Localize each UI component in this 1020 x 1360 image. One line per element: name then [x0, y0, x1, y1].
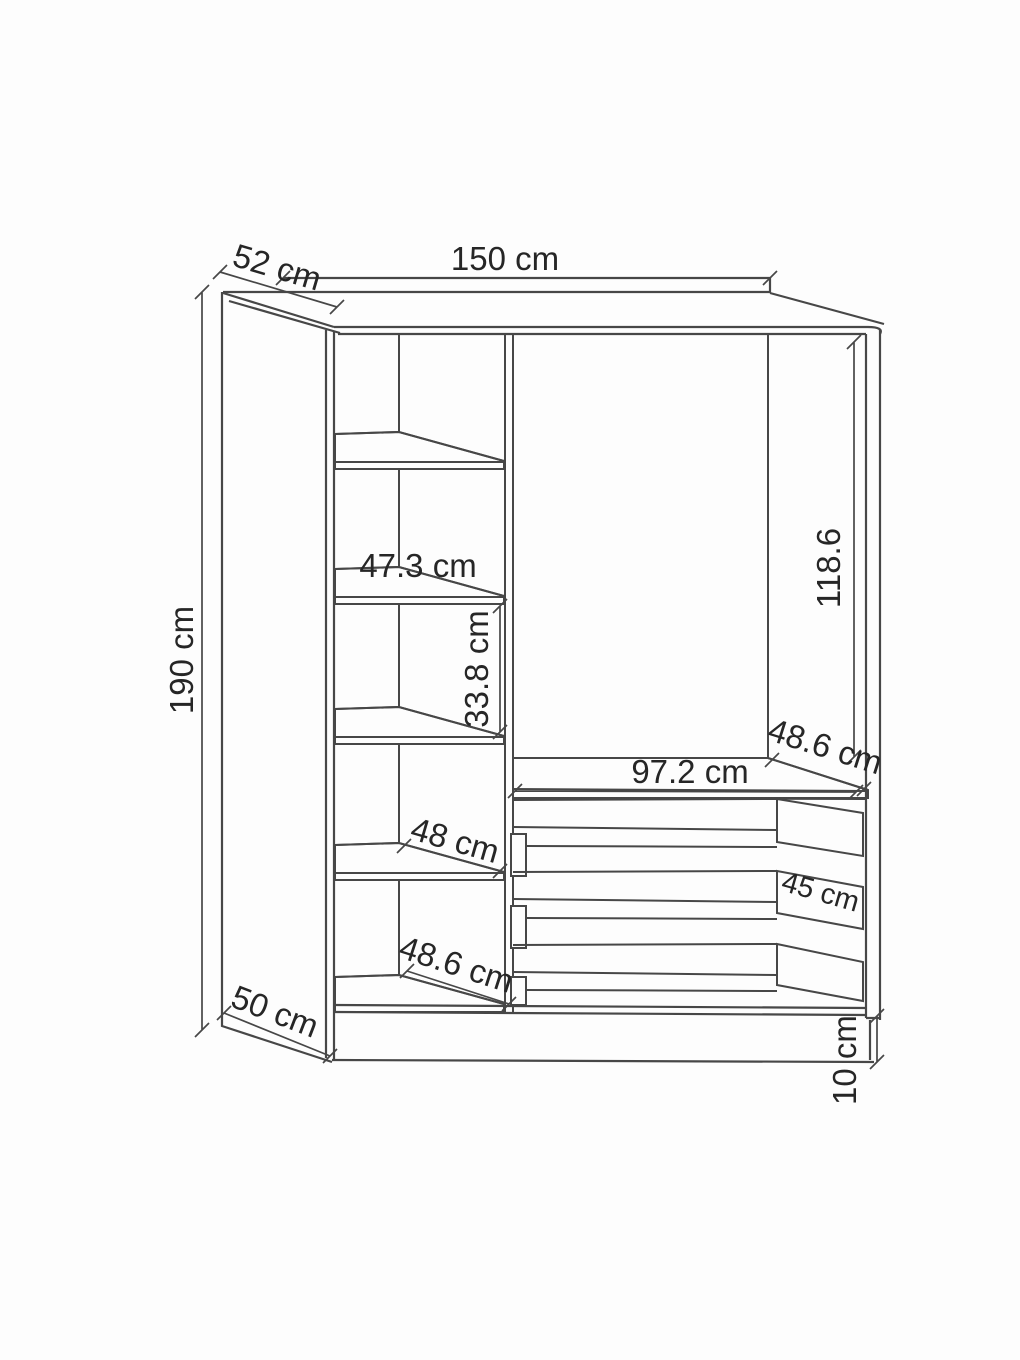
- drawer-back-edge: [513, 871, 777, 872]
- drawer-left-side: [511, 834, 526, 876]
- drawer-inner-edge: [527, 990, 777, 991]
- dim-label-overall-height: 190 cm: [163, 606, 200, 714]
- wardrobe-dimension-diagram: 150 cm 52 cm 190 cm 47.3 cm 33.8 cm 118.…: [0, 0, 1020, 1360]
- dim-label-plinth-height: 10 cm: [826, 1015, 863, 1105]
- dim-label-shelf-spacing: 33.8 cm: [458, 610, 495, 727]
- drawer-left-side: [511, 906, 526, 948]
- drawer-inner-edge: [527, 918, 777, 919]
- dim-label-right-section-height: 118.6: [810, 528, 847, 608]
- diagram-canvas: 150 cm 52 cm 190 cm 47.3 cm 33.8 cm 118.…: [0, 0, 1020, 1360]
- drawer-back-edge: [513, 944, 777, 945]
- dim-label-upper-shelf-width: 47.3 cm: [359, 547, 476, 584]
- drawer-back-edge: [513, 799, 777, 800]
- dim-label-drawer-section-width: 97.2 cm: [631, 753, 748, 790]
- dim-label-overall-width: 150 cm: [451, 240, 559, 277]
- drawer-inner-edge: [527, 846, 777, 847]
